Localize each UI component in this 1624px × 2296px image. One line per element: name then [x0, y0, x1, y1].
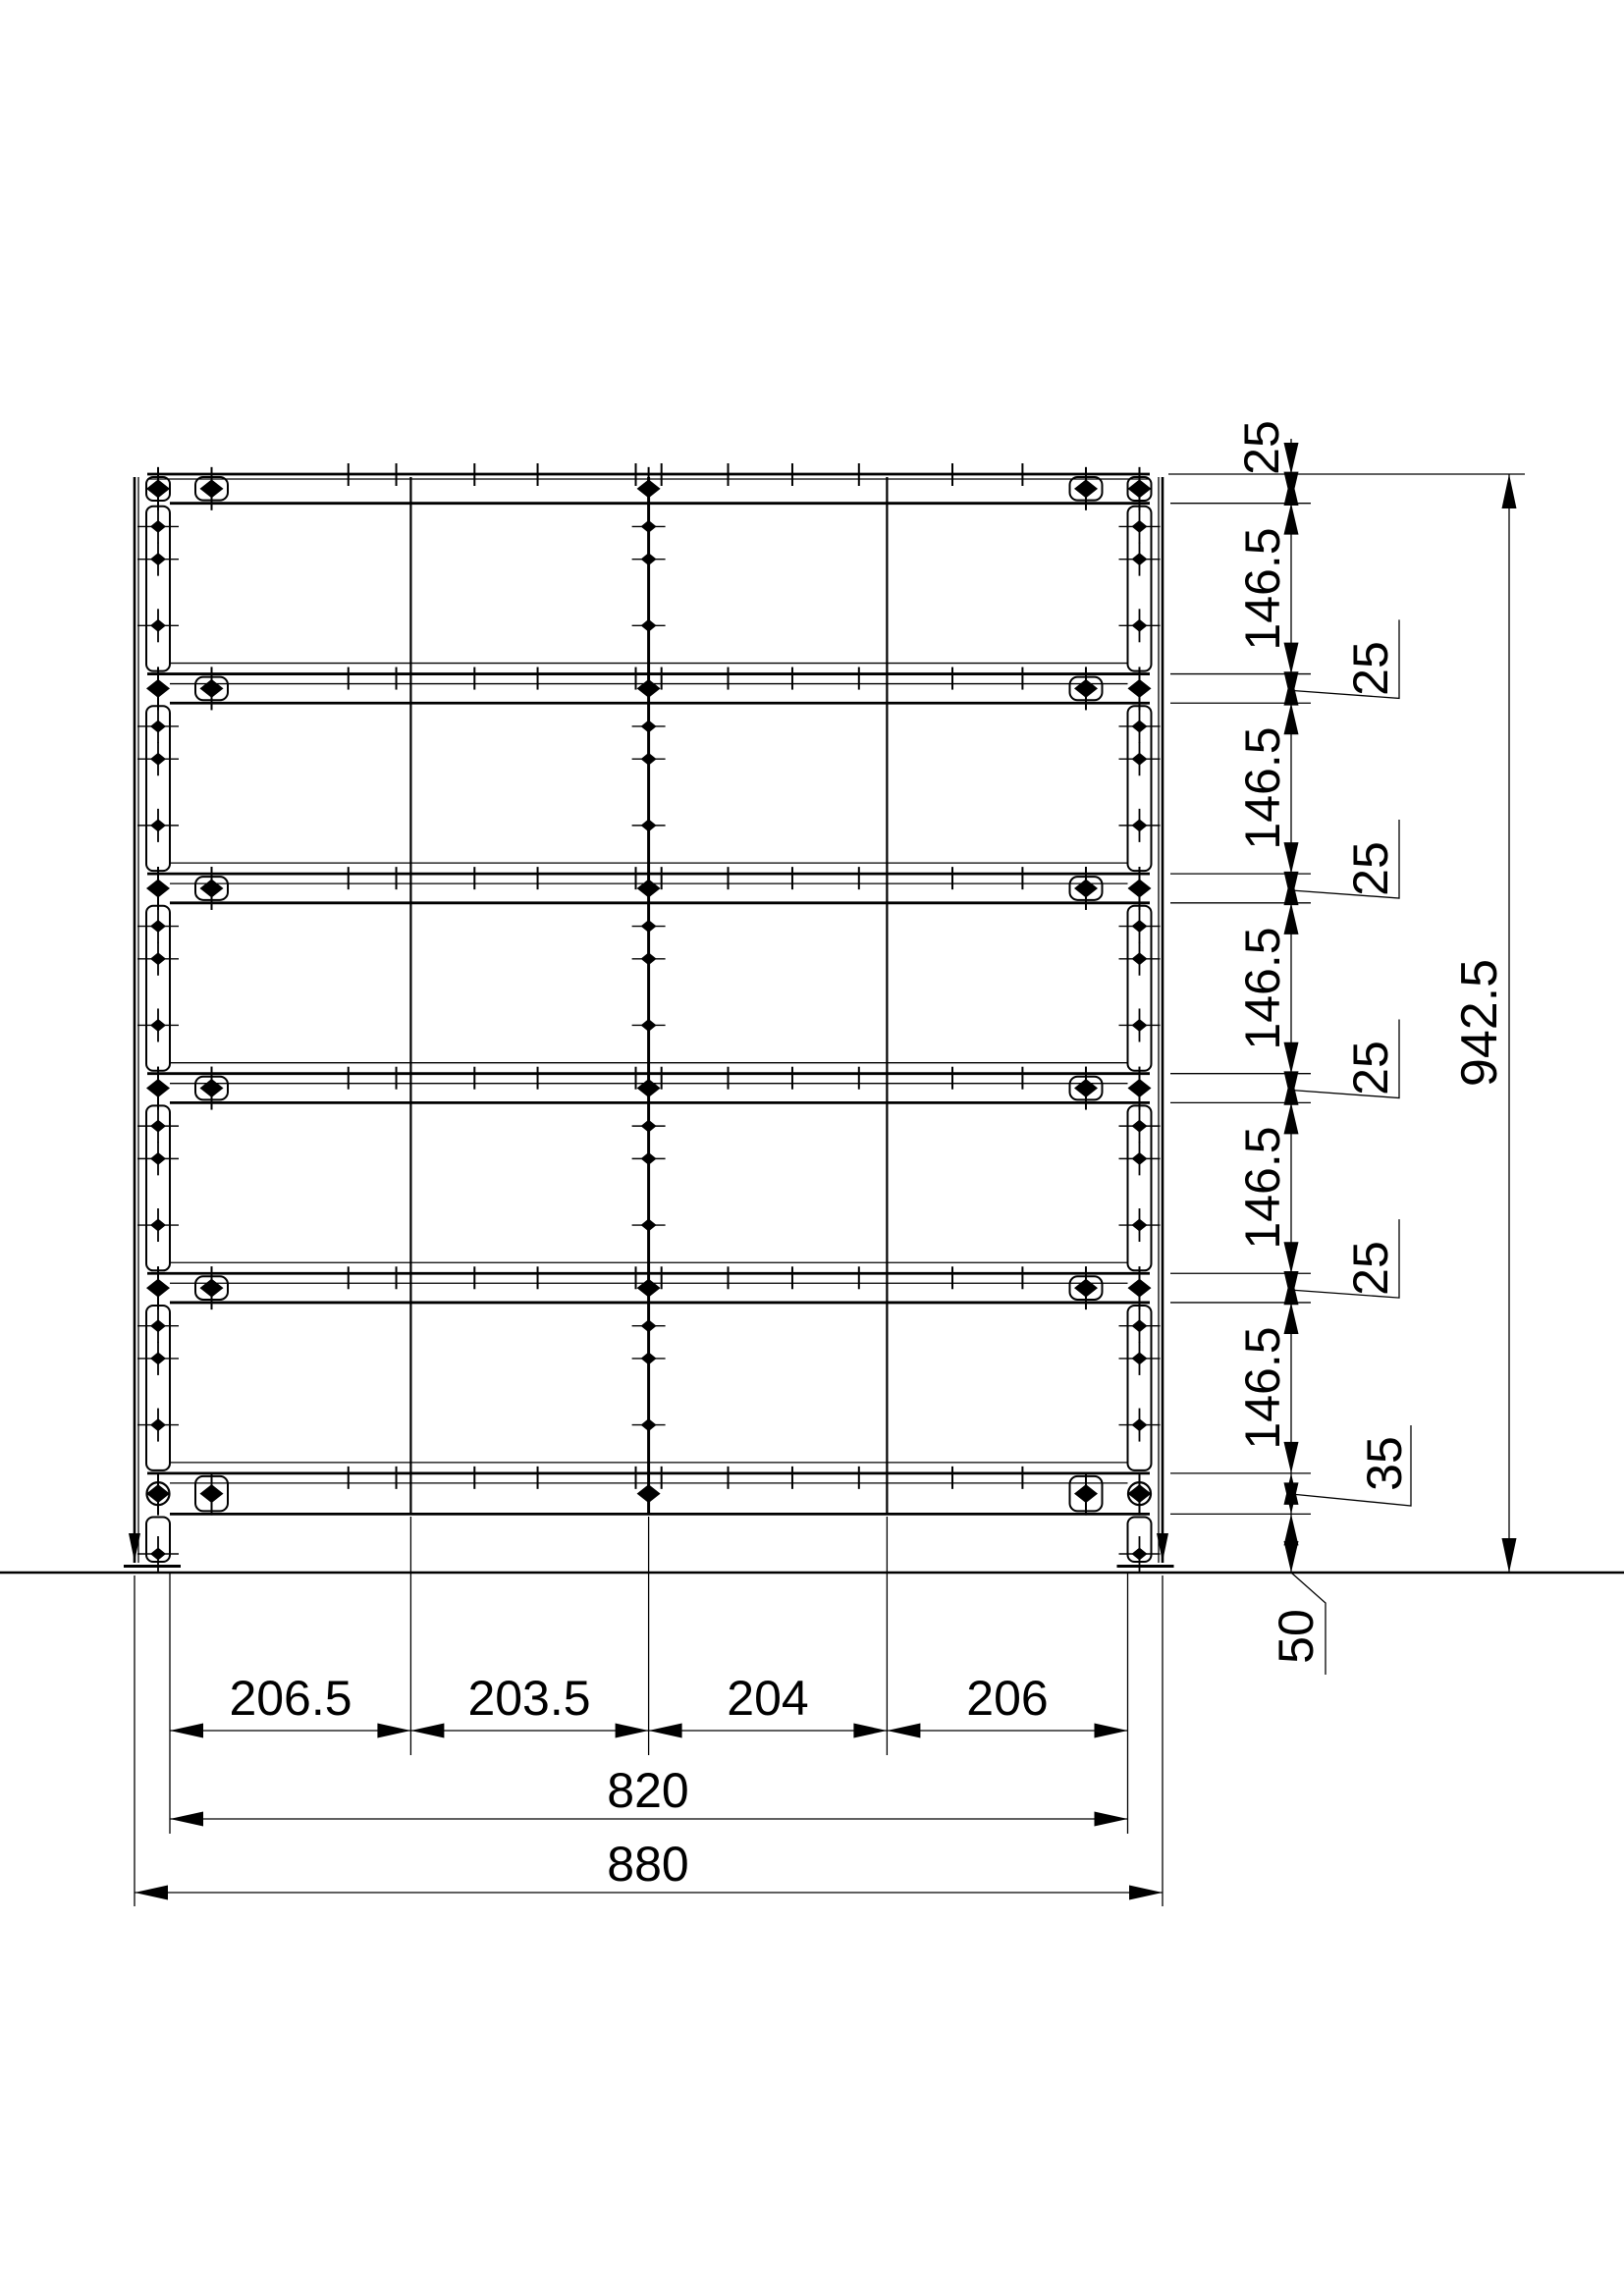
- bolt-icon-small: [137, 1342, 179, 1375]
- bolt-head: [150, 753, 166, 766]
- bolt-head: [150, 1219, 166, 1232]
- bolt-head: [1132, 1352, 1148, 1364]
- leader-lines: [1291, 619, 1411, 1675]
- bolt-head: [641, 553, 657, 565]
- bolt-icon-small: [632, 1409, 666, 1442]
- bolt-head: [150, 553, 166, 565]
- bolt-icon-small: [1119, 910, 1161, 943]
- bolt-head: [641, 1319, 657, 1332]
- bolt-head: [150, 920, 166, 933]
- dim-label-segment-1: 206.5: [229, 1671, 352, 1726]
- bolt-head: [641, 1352, 657, 1364]
- bolt-icon-small: [1119, 1008, 1161, 1041]
- dim-label-gap-3: 146.5: [1235, 927, 1290, 1049]
- arrow-left-icon: [410, 1724, 444, 1738]
- bolt-head: [150, 1152, 166, 1165]
- dim-label-rail-3: 25: [1343, 1041, 1398, 1095]
- dim-label-gap-5: 146.5: [1235, 1326, 1290, 1449]
- bolt-icon-small: [137, 1309, 179, 1343]
- right-post: [1128, 477, 1174, 1567]
- arrow-left-icon: [170, 1724, 203, 1738]
- bolt-icon-small: [137, 710, 179, 743]
- bolt-icon-small: [1119, 543, 1161, 576]
- arrow-right-icon: [616, 1724, 649, 1738]
- dim-label-rail-1: 25: [1343, 641, 1398, 696]
- bolt-head: [1132, 619, 1148, 632]
- dim-label-overall-width: 880: [607, 1837, 688, 1892]
- dim-label-rail-2: 25: [1343, 841, 1398, 896]
- bolt-head: [1132, 1120, 1148, 1133]
- bolt-icon-small: [632, 1142, 666, 1175]
- bolt-icon-small: [137, 1142, 179, 1175]
- bolt-head: [150, 1352, 166, 1364]
- bolt-head: [200, 1079, 224, 1097]
- bolt-head: [641, 952, 657, 965]
- bolt-head: [1132, 1219, 1148, 1232]
- bolt-head: [641, 1019, 657, 1032]
- rack-structure: [0, 463, 1624, 1574]
- bolt-icon: [146, 1472, 170, 1516]
- bolt-icon: [200, 1472, 224, 1516]
- engineering-drawing: 25 146.5 146.5 146.5 146.5 146.5 25 25 2…: [0, 0, 1624, 2296]
- dimension-labels: 25 146.5 146.5 146.5 146.5 146.5 25 25 2…: [229, 420, 1508, 1892]
- bolt-head: [146, 479, 170, 498]
- bolt-icon-small: [137, 942, 179, 976]
- bolt-head: [150, 952, 166, 965]
- bolt-head: [1074, 1279, 1098, 1298]
- bolt-head: [1074, 479, 1098, 498]
- bolt-head: [1074, 1079, 1098, 1097]
- arrow-right-icon: [1129, 1886, 1163, 1900]
- dim-label-segment-2: 203.5: [467, 1671, 590, 1726]
- bolt-head: [200, 1279, 224, 1298]
- bolt-head: [150, 1120, 166, 1133]
- bolt-head: [641, 819, 657, 831]
- bolt-icon-small: [632, 1309, 666, 1343]
- bolt-head: [641, 619, 657, 632]
- bolt-icon-small: [137, 509, 179, 543]
- bolt-head: [641, 753, 657, 766]
- bolt-head: [150, 619, 166, 632]
- bolt-head: [641, 720, 657, 732]
- bolt-icon-small: [632, 509, 666, 543]
- bolt-icon-small: [1119, 1109, 1161, 1143]
- bolt-icon-small: [137, 1109, 179, 1143]
- bolt-head: [200, 1484, 224, 1503]
- arrow-up-icon: [1284, 1514, 1299, 1545]
- dim-label-overall-height: 942.5: [1451, 959, 1508, 1087]
- bolt-icon-small: [1119, 1342, 1161, 1375]
- bolt-icon-small: [1119, 742, 1161, 775]
- bolt-icon-small: [1119, 1142, 1161, 1175]
- bolt-head: [1132, 1319, 1148, 1332]
- bolt-icon-small: [632, 1208, 666, 1242]
- arrow-left-icon: [135, 1886, 168, 1900]
- bolt-head: [1132, 1152, 1148, 1165]
- bolt-head: [150, 1548, 166, 1561]
- dim-label-segment-3: 204: [727, 1671, 808, 1726]
- bolt-head: [641, 920, 657, 933]
- bolt-head: [146, 679, 170, 698]
- bolt-head: [1132, 1019, 1148, 1032]
- bolt-icon-small: [632, 1109, 666, 1143]
- bolt-head: [641, 1219, 657, 1232]
- bolt-icon-small: [137, 1409, 179, 1442]
- bolt-head: [146, 1279, 170, 1298]
- arrow-down-icon: [1284, 1541, 1299, 1573]
- bolt-head: [641, 1120, 657, 1133]
- bolt-icon-small: [1119, 942, 1161, 976]
- dim-label-gap-4: 146.5: [1235, 1126, 1290, 1249]
- bolt-head: [1132, 1418, 1148, 1431]
- bolt-icon-small: [632, 809, 666, 842]
- bolt-icon-small: [1119, 710, 1161, 743]
- bolt-icon-small: [632, 742, 666, 775]
- dim-label-gap-1: 146.5: [1235, 527, 1290, 650]
- bolt-head: [1132, 920, 1148, 933]
- bolt-icon-small: [1119, 1536, 1161, 1574]
- bolt-head: [1132, 819, 1148, 831]
- arrow-right-icon: [853, 1724, 887, 1738]
- bolt-head: [150, 720, 166, 732]
- dim-label-ground-clearance: 50: [1269, 1609, 1324, 1664]
- bolt-head: [641, 1418, 657, 1431]
- bolt-head: [150, 1319, 166, 1332]
- arrow-right-icon: [1095, 1812, 1128, 1827]
- left-post: [124, 477, 170, 1567]
- bolt-icon-small: [137, 910, 179, 943]
- arrow-left-icon: [170, 1812, 203, 1827]
- bolt-icon-small: [137, 742, 179, 775]
- bolt-icon-small: [632, 543, 666, 576]
- bolt-icon: [1128, 1472, 1152, 1516]
- drawing-page: 25 146.5 146.5 146.5 146.5 146.5 25 25 2…: [0, 0, 1624, 2296]
- bolt-head: [146, 879, 170, 897]
- bolt-icon-small: [1119, 609, 1161, 642]
- bolt-head: [1128, 1079, 1152, 1097]
- bolt-head: [200, 879, 224, 897]
- bolt-icon-small: [137, 1208, 179, 1242]
- bolt-icon-small: [632, 942, 666, 976]
- bolt-head: [1128, 479, 1152, 498]
- bolt-head: [150, 1019, 166, 1032]
- arrow-down-icon: [1502, 1538, 1517, 1573]
- arrow-right-icon: [377, 1724, 410, 1738]
- bolt-head: [641, 1152, 657, 1165]
- dim-label-inner-width: 820: [607, 1763, 688, 1818]
- bolt-head: [1128, 879, 1152, 897]
- dim-label-top-rail: 25: [1234, 420, 1289, 475]
- dim-label-segment-4: 206: [966, 1671, 1048, 1726]
- bolt-head: [1132, 952, 1148, 965]
- bolt-icon-small: [1119, 1409, 1161, 1442]
- bolt-head: [200, 479, 224, 498]
- arrow-up-icon: [1502, 474, 1517, 508]
- bolt-icon-small: [137, 809, 179, 842]
- bolt-head: [1074, 1484, 1098, 1503]
- bolt-head: [1132, 720, 1148, 732]
- dim-label-rail-4: 25: [1343, 1241, 1398, 1296]
- arrow-left-icon: [887, 1724, 920, 1738]
- bolt-head: [1132, 753, 1148, 766]
- dim-label-gap-2: 146.5: [1235, 726, 1290, 849]
- bolt-head: [641, 520, 657, 533]
- bolt-head: [150, 520, 166, 533]
- dim-label-bottom-rail: 35: [1357, 1436, 1412, 1491]
- bolt-icon-small: [1119, 509, 1161, 543]
- bolt-head: [150, 1418, 166, 1431]
- bolt-icon-small: [632, 910, 666, 943]
- bolt-head: [1132, 1548, 1148, 1561]
- bolt-head: [146, 1079, 170, 1097]
- bolt-head: [1128, 1279, 1152, 1298]
- bolt-icon-small: [632, 1008, 666, 1041]
- bolt-icon-small: [137, 543, 179, 576]
- bolt-icon-small: [1119, 809, 1161, 842]
- bolt-icon-small: [632, 1342, 666, 1375]
- bolt-head: [1074, 679, 1098, 698]
- bolt-head: [1128, 679, 1152, 698]
- bolt-head: [1132, 553, 1148, 565]
- bolt-icon-small: [137, 1536, 179, 1574]
- bolt-head: [150, 819, 166, 831]
- arrow-right-icon: [1095, 1724, 1128, 1738]
- arrow-left-icon: [649, 1724, 682, 1738]
- bolt-head: [1132, 520, 1148, 533]
- bolt-icon: [1074, 1472, 1098, 1516]
- bolt-head: [200, 679, 224, 698]
- bolt-icon-small: [137, 609, 179, 642]
- bolt-icon-small: [632, 710, 666, 743]
- bolt-icon-small: [1119, 1309, 1161, 1343]
- bolt-icon-small: [632, 609, 666, 642]
- bolt-head: [1074, 879, 1098, 897]
- bolt-icon-small: [1119, 1208, 1161, 1242]
- bolt-icon-small: [137, 1008, 179, 1041]
